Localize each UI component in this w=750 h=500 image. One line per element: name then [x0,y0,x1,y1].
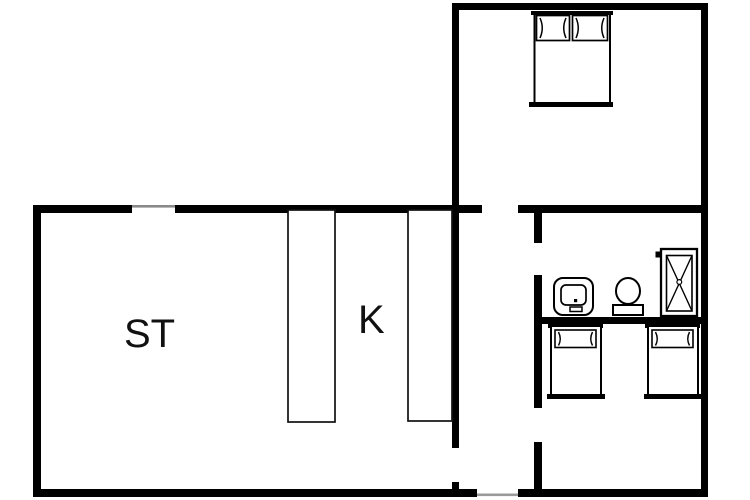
wall-hall-top-right [518,205,708,213]
wall-right [701,3,708,497]
double-bed-footboard [529,102,613,107]
wall-left [33,205,41,497]
sink-basin [561,285,586,305]
single-bed-footboard [547,394,605,399]
wall-bath-floor [534,317,708,324]
sink-faucet [570,307,582,312]
wall-bedroom-top [452,3,708,10]
single-bed-left-icon [547,324,605,399]
wall-bedroom-left [452,3,459,213]
wall-hall-bath-lower [534,442,542,497]
wall-bottom-left [33,489,477,497]
single-bed-footboard [644,394,702,399]
toilet-tank [613,305,643,315]
sink-icon [554,278,593,315]
double-bed-pillow-left [537,16,570,41]
wall-hall-top-left [459,205,482,213]
window-line-st [132,205,175,208]
counter-left-icon [288,210,335,422]
wall-k-hall [452,205,459,448]
entrance-threshold-line [477,494,518,497]
counter-right-icon [408,210,452,421]
wall-st-top-left [33,205,132,213]
room-label-st: ST [124,312,175,356]
wall-hall-bath-mid [534,275,542,408]
sink-drain-dot [574,299,577,302]
floorplan-page: ST K [0,0,750,500]
room-label-k: K [358,298,385,342]
single-bed-pillow [555,330,596,348]
toilet-icon [613,278,643,315]
wall-bottom-right [518,489,708,497]
floorplan-canvas: ST K [0,0,750,500]
double-bed-icon [529,11,613,107]
shower-icon [656,249,698,316]
shower-valve [656,252,661,258]
shower-drain-dot [677,280,682,285]
bathroom-fixtures [554,249,697,316]
toilet-bowl [616,278,640,304]
wall-hall-bath-upper [534,205,542,243]
wall-k-hall-stub [452,482,459,494]
single-bed-pillow [652,330,693,348]
single-bed-right-icon [644,324,702,399]
